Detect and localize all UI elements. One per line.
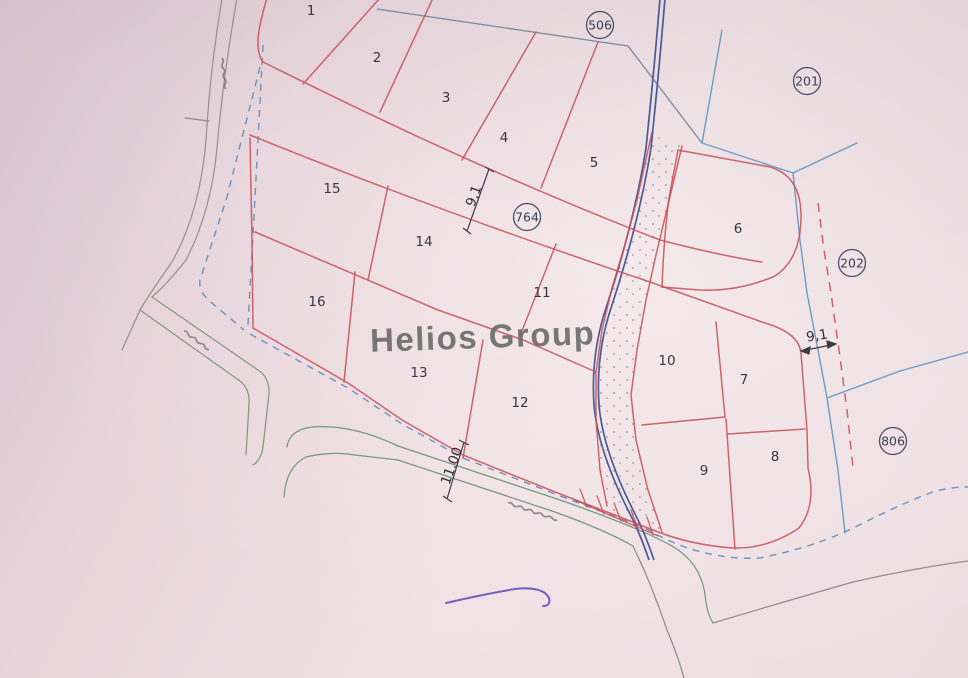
boundary-west [250, 138, 253, 328]
parcel-lines [250, 0, 811, 549]
plot-number-label: 1 [307, 3, 316, 19]
survey-marker-circle: 202 [839, 250, 866, 277]
survey-marker-circle: 506 [587, 12, 614, 39]
marker-number: 202 [840, 256, 864, 271]
blue-boundary-junction-b [793, 143, 857, 173]
divider-plot9-8 [726, 419, 735, 549]
path-tick [185, 118, 209, 121]
plot-number-label: 14 [415, 234, 432, 250]
plot-number-label: 3 [442, 90, 451, 106]
plot-number-label: 15 [323, 181, 340, 197]
divider-plot2-3 [380, 0, 433, 112]
survey-marker-circle: 764 [514, 204, 541, 231]
divider-plot10-9 [642, 417, 725, 425]
plot-number-label: 13 [410, 365, 427, 381]
divider-plot15-14 [368, 186, 388, 280]
blue-boundary-top [702, 30, 722, 143]
plot-number-label: 10 [658, 353, 675, 369]
plot-number-label: 2 [373, 50, 382, 66]
marker-number: 764 [515, 210, 539, 225]
divider-plot10-7 [716, 322, 725, 417]
road-name-labels [183, 58, 557, 521]
plot-number-label: 4 [500, 130, 509, 146]
plot-number-label: 7 [740, 372, 749, 388]
plot-number-label: 8 [771, 449, 780, 465]
road-edge-west-a [152, 297, 269, 465]
arrowhead-left [801, 347, 810, 354]
measurement-value: 9,1 [463, 183, 485, 209]
marker-number: 506 [588, 18, 612, 33]
plot-number-label: 12 [511, 395, 528, 411]
plot-number-label: 11 [533, 285, 550, 301]
measurement-value: 9,1 [805, 326, 829, 345]
divider-plot13-12 [463, 340, 483, 458]
survey-map-photo: 12345678910111213141516 506201764202806 … [0, 0, 968, 678]
boundary-southwest-along-road [253, 328, 653, 530]
survey-marker-circle: 806 [880, 428, 907, 455]
marker-number: 201 [795, 74, 819, 89]
plot-number-label: 6 [734, 221, 743, 237]
blue-boundaries [702, 30, 968, 533]
road-edge-west-b [140, 310, 249, 455]
survey-markers: 506201764202806 [514, 12, 907, 455]
plot-number-label: 16 [308, 294, 325, 310]
road-edge-northwest-outer [122, 0, 222, 350]
blue-boundary-branch-east [827, 352, 968, 398]
blue-boundary-junction-a [702, 143, 793, 173]
watermark-text: Helios Group [369, 314, 595, 359]
survey-marker-circle: 201 [794, 68, 821, 95]
plot-number-label: 9 [700, 463, 709, 479]
marker-number: 806 [881, 434, 905, 449]
road-edge-northwest-inner [152, 0, 237, 297]
cadastral-map: 12345678910111213141516 506201764202806 … [0, 0, 968, 678]
divider-plot16-13 [344, 272, 355, 382]
road-edge-southeast [713, 561, 968, 623]
plot6-boundary [662, 150, 801, 290]
road-edge-south [633, 546, 684, 678]
pen-ink-mark [446, 588, 549, 606]
plot-number-label: 5 [590, 155, 599, 171]
boundary-northwest-and-road-upper [258, 0, 762, 262]
divider-plot7-8 [728, 429, 805, 434]
